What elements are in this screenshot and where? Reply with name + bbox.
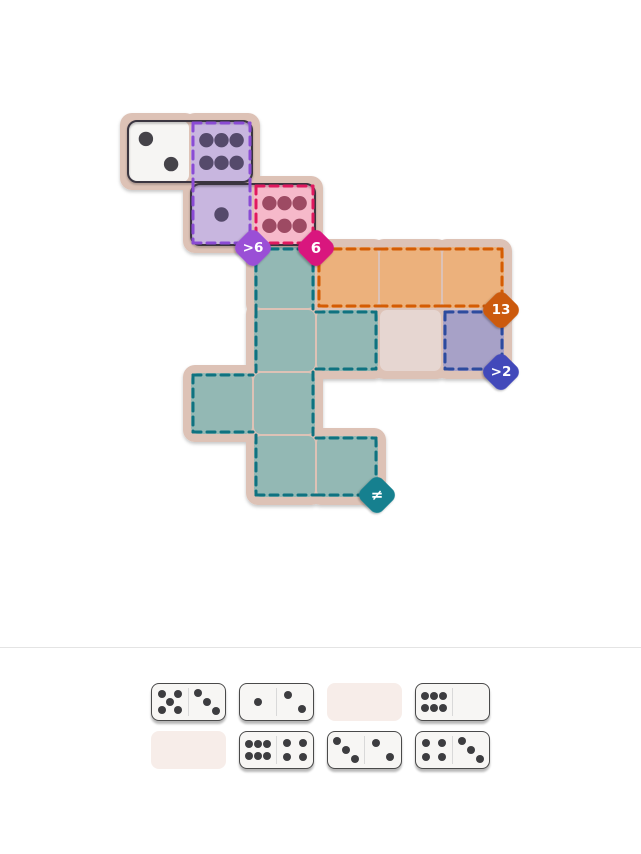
pip [203,698,211,706]
pip [439,704,447,712]
board-cell-r3c4[interactable] [380,310,441,371]
board-cell-r0c0[interactable] [128,121,189,182]
board-cell-r3c2[interactable] [254,310,315,371]
pip [214,133,228,147]
pip [254,740,262,748]
tray-domino-6-4[interactable] [239,731,314,769]
domino-half [328,732,364,768]
pip [283,739,291,747]
board-cell-r1c2[interactable] [254,184,315,245]
board-cell-r0c1[interactable] [191,121,252,182]
tray-slot-empty [151,731,226,769]
domino-half [240,684,276,720]
pip [194,689,202,697]
pip [298,705,306,713]
badge-label: 6 [311,239,321,257]
pip [386,753,394,761]
pip [283,753,291,761]
pip [299,753,307,761]
pip [139,132,153,146]
tray-slot-empty [327,683,402,721]
pip [262,196,276,210]
pip [229,156,243,170]
domino-half [453,732,489,768]
tray-row [151,731,490,769]
tray-domino-4-3[interactable] [415,731,490,769]
pip [199,156,213,170]
domino-tray [0,683,641,769]
pip [422,739,430,747]
pip [372,739,380,747]
tray-domino-5-3[interactable] [151,683,226,721]
domino-half [277,732,313,768]
tray-row [151,683,490,721]
domino-half [240,732,276,768]
badge-label: ≠ [371,486,384,504]
tray-domino-6-0[interactable] [415,683,490,721]
puzzle-board: >6613>2≠ [0,0,641,660]
pip [199,133,213,147]
domino-half [453,684,489,720]
pip [166,698,174,706]
tray-domino-3-2[interactable] [327,731,402,769]
pip [430,692,438,700]
pip [476,755,484,763]
pip [263,740,271,748]
pip [458,737,466,745]
domino-half [152,684,188,720]
tray-divider [0,647,641,648]
pip [158,706,166,714]
pip [263,752,271,760]
pip [421,692,429,700]
board-cell-r4c2[interactable] [254,373,315,434]
pip [422,753,430,761]
board-cell-r2c4[interactable] [380,247,441,308]
tray-domino-1-2[interactable] [239,683,314,721]
pip [342,746,350,754]
board-cell-r5c2[interactable] [254,436,315,497]
pip [158,690,166,698]
domino-half [277,684,313,720]
pip [299,739,307,747]
pip [277,196,291,210]
pip [245,740,253,748]
pip [174,706,182,714]
pip [430,704,438,712]
board-cell-r3c3[interactable] [317,310,378,371]
pip [292,196,306,210]
pip [284,691,292,699]
pip [214,156,228,170]
pip [292,219,306,233]
domino-half [416,732,452,768]
domino-half [365,732,401,768]
pip [421,704,429,712]
pip [229,133,243,147]
pip [439,692,447,700]
pip [277,219,291,233]
pip [438,739,446,747]
pip [333,737,341,745]
badge-label: >2 [491,364,512,380]
badge-label: >6 [243,240,264,256]
domino-half [189,684,225,720]
pip [262,219,276,233]
board-cell-r4c1[interactable] [191,373,252,434]
pip [438,753,446,761]
pip [351,755,359,763]
pip [467,746,475,754]
pip [254,752,262,760]
pip [212,707,220,715]
badge-label: 13 [492,302,511,318]
pip [254,698,262,706]
pip [245,752,253,760]
pip [164,157,178,171]
pip [214,207,228,221]
pip [174,690,182,698]
domino-half [416,684,452,720]
